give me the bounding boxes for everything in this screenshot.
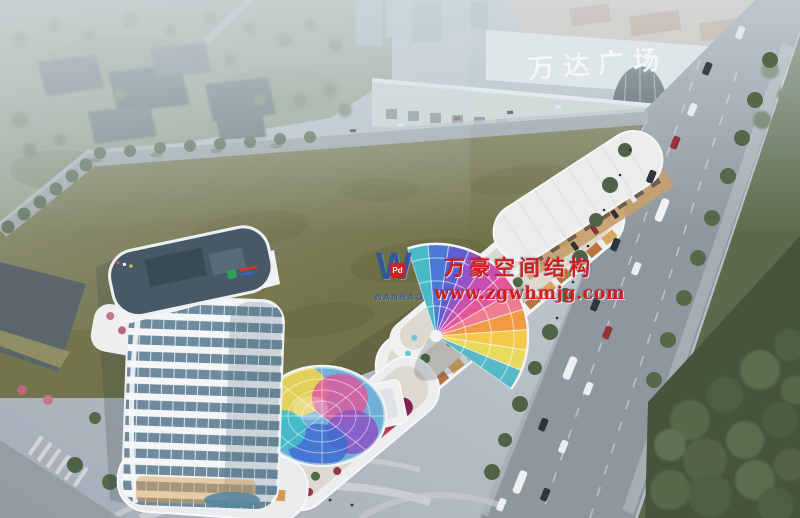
watermark-website: www.zgwhmjg.com	[434, 284, 625, 304]
watermark-logo-subtext: WANHAO	[374, 292, 425, 302]
watermark: W Pd WANHAO 万豪空间结构 www.zgwhmjg.com	[374, 252, 625, 306]
watermark-company: 万豪空间结构	[444, 252, 625, 282]
hotel-tower	[88, 222, 309, 518]
watermark-text: 万豪空间结构 www.zgwhmjg.com	[434, 252, 625, 304]
watermark-logo: W Pd WANHAO	[374, 252, 432, 306]
tower-body	[121, 295, 284, 510]
aerial-rendering: 万达广场 W Pd WANHAO 万豪空间结构 www.zgwhmjg.com	[0, 0, 800, 518]
tower-pool	[204, 492, 260, 508]
watermark-logo-badge: Pd	[390, 263, 405, 278]
